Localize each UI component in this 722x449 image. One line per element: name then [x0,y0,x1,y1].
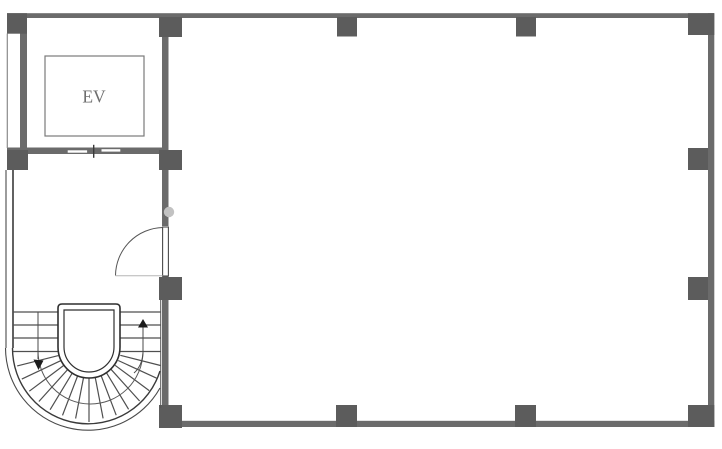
svg-text:EV: EV [82,87,106,107]
